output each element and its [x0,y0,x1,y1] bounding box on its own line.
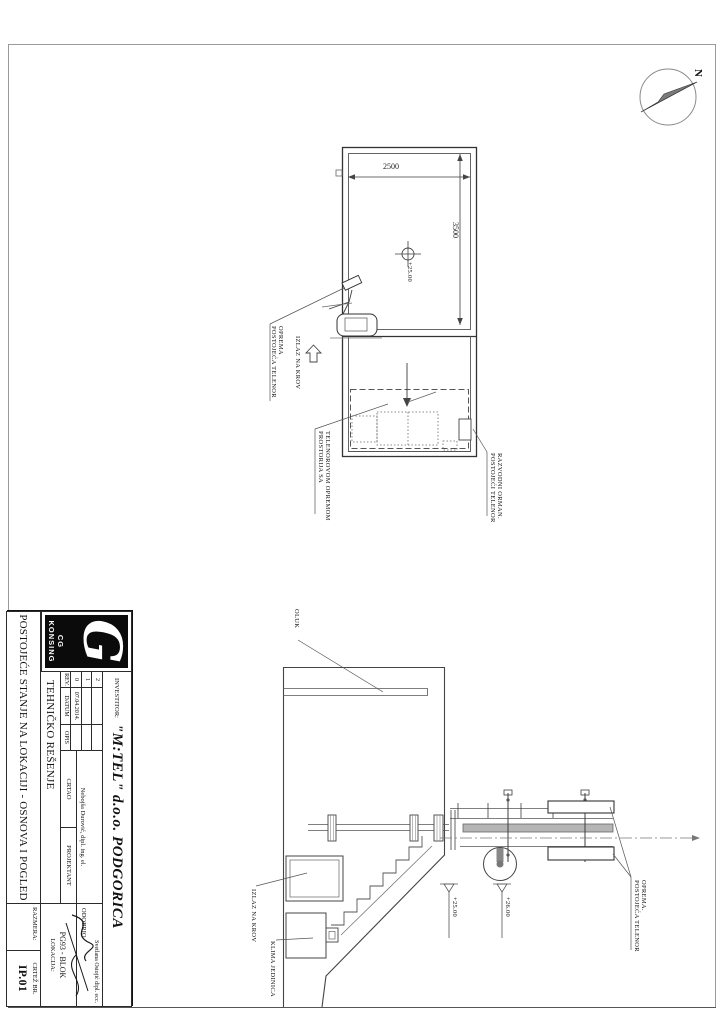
investor-name: "M:TEL" d.o.o. PODGORICA [109,724,126,929]
plan-cabinet-label: POSTOJEĆI TELENOR RAZVODNI ORMAN. [489,453,503,523]
logo-company-name: CG KONSING [47,615,65,668]
north-label: N [692,69,704,77]
approved-cell: Svetlana Ostojić dipl. ecc. ODOBRIO [76,903,103,1007]
plan-dim-2500: 2500 [376,162,406,171]
elev-exit-label: IZLAZ NA KROV [250,889,257,942]
title-block: G CG KONSING INVESTITOR: "M:TEL" d.o.o. … [7,610,133,1006]
drawing-sheet: N POSTOJEĆA TELENOR OPREMA IZLAZ NA KROV… [0,0,724,1024]
solution-title: TEHNIČKO REŠENJE [40,671,61,904]
revision-table: 2 1 0 07.04.2014. REV. DATUM OPIS [60,671,103,751]
revision-row: 1 [81,672,92,750]
plan-equipment-label: POSTOJEĆA TELENOR OPREMA [270,326,284,398]
approved-name: Svetlana Ostojić dipl. ecc. [93,940,99,1003]
plan-dim-3500: 3500 [451,222,460,238]
location-value: PG93 - BLOK [59,932,68,979]
approved-label: ODOBRIO [80,908,87,938]
drawn-label: CRTAO [60,750,77,828]
revision-row: 0 07.04.2014. [71,672,82,750]
investor-label: INVESTITOR: [114,678,121,718]
plan-room-label: PROSTORIJA SA TELENOROVOM OPREMOM [317,431,331,521]
location-label: LOKACIJA: [50,938,57,972]
sheet-number-cell: CRTEŽ BR. IP.01 [6,950,41,1007]
location-cell: PG93 - BLOK LOKACIJA: [40,903,77,1007]
north-arrow-icon [640,69,697,125]
designed-label: PROJEKTANT [60,827,77,904]
revision-row: 2 [92,672,103,750]
drawn-by-name: Nebojša Durović, dipl. ing. el. [76,750,103,904]
sheet-number-value: IP.01 [16,951,28,1006]
sheet-number-label: CRTEŽ BR. [31,951,38,1006]
elev-level-roof: +25.00 [451,897,458,917]
revision-header-row: REV. DATUM OPIS [61,672,71,750]
company-logo: G CG KONSING [41,611,132,672]
plan-linework [270,148,487,517]
elev-equipment-label: POSTOJEĆA TELENOR OPREMA. [633,880,647,952]
drawing-title: POSTOJEĆE STANJE NA LOKACIJI - OSNOVA I … [6,611,41,904]
railing-posts [328,815,443,841]
plan-roof-level: +25.00 [406,262,413,282]
investor-cell: INVESTITOR: "M:TEL" d.o.o. PODGORICA [102,671,132,1007]
plan-exit-label: IZLAZ NA KROV [294,336,301,389]
elev-ac-label: KLIMA JEDINICA [269,941,276,997]
elev-gutter-label: OLUK [293,609,300,628]
logo-g-icon: G [71,615,132,668]
scale-cell: RAZMERA: [6,903,41,951]
elev-level-top: +26.00 [504,897,511,917]
